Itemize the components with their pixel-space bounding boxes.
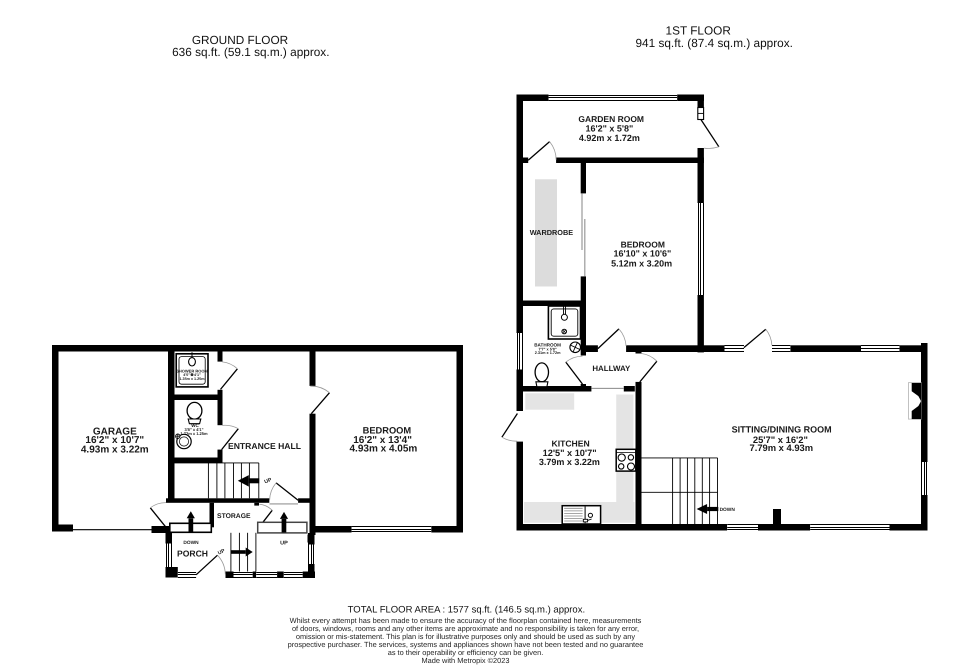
- svg-text:BEDROOM: BEDROOM: [363, 425, 412, 435]
- svg-text:636 sq.ft. (59.1 sq.m.) approx: 636 sq.ft. (59.1 sq.m.) approx.: [172, 45, 329, 59]
- svg-text:1.35m x 1.25m: 1.35m x 1.25m: [179, 377, 205, 381]
- svg-text:HALLWAY: HALLWAY: [592, 364, 631, 373]
- svg-text:WARDROBE: WARDROBE: [530, 228, 574, 237]
- svg-text:UP: UP: [280, 540, 288, 546]
- svg-text:2.31m x 1.72m: 2.31m x 1.72m: [535, 351, 561, 355]
- svg-text:DOWN: DOWN: [720, 507, 736, 513]
- svg-text:ENTRANCE HALL: ENTRANCE HALL: [228, 441, 301, 451]
- svg-text:4.92m x 1.72m: 4.92m x 1.72m: [579, 133, 640, 143]
- svg-text:STORAGE: STORAGE: [217, 513, 251, 520]
- svg-text:941 sq.ft. (87.4 sq.m.) approx: 941 sq.ft. (87.4 sq.m.) approx.: [636, 36, 793, 50]
- svg-text:GARDEN ROOM: GARDEN ROOM: [578, 114, 644, 124]
- svg-text:TOTAL FLOOR AREA : 1577 sq.ft.: TOTAL FLOOR AREA : 1577 sq.ft. (146.5 sq…: [348, 604, 585, 615]
- svg-text:5.12m x 3.20m: 5.12m x 3.20m: [611, 258, 672, 268]
- svg-text:PORCH: PORCH: [177, 549, 208, 559]
- svg-text:7.79m x 4.93m: 7.79m x 4.93m: [750, 442, 814, 453]
- svg-text:16'10" x 10'6": 16'10" x 10'6": [613, 248, 671, 258]
- svg-text:4.93m x 4.05m: 4.93m x 4.05m: [349, 444, 417, 455]
- svg-text:3.79m x 3.22m: 3.79m x 3.22m: [539, 457, 600, 467]
- svg-text:16'2" x 5'8": 16'2" x 5'8": [585, 123, 633, 133]
- svg-text:4.93m x 3.22m: 4.93m x 3.22m: [81, 444, 149, 455]
- svg-text:DOWN: DOWN: [183, 540, 199, 546]
- svg-text:Made with Metropix ©2023: Made with Metropix ©2023: [421, 656, 509, 665]
